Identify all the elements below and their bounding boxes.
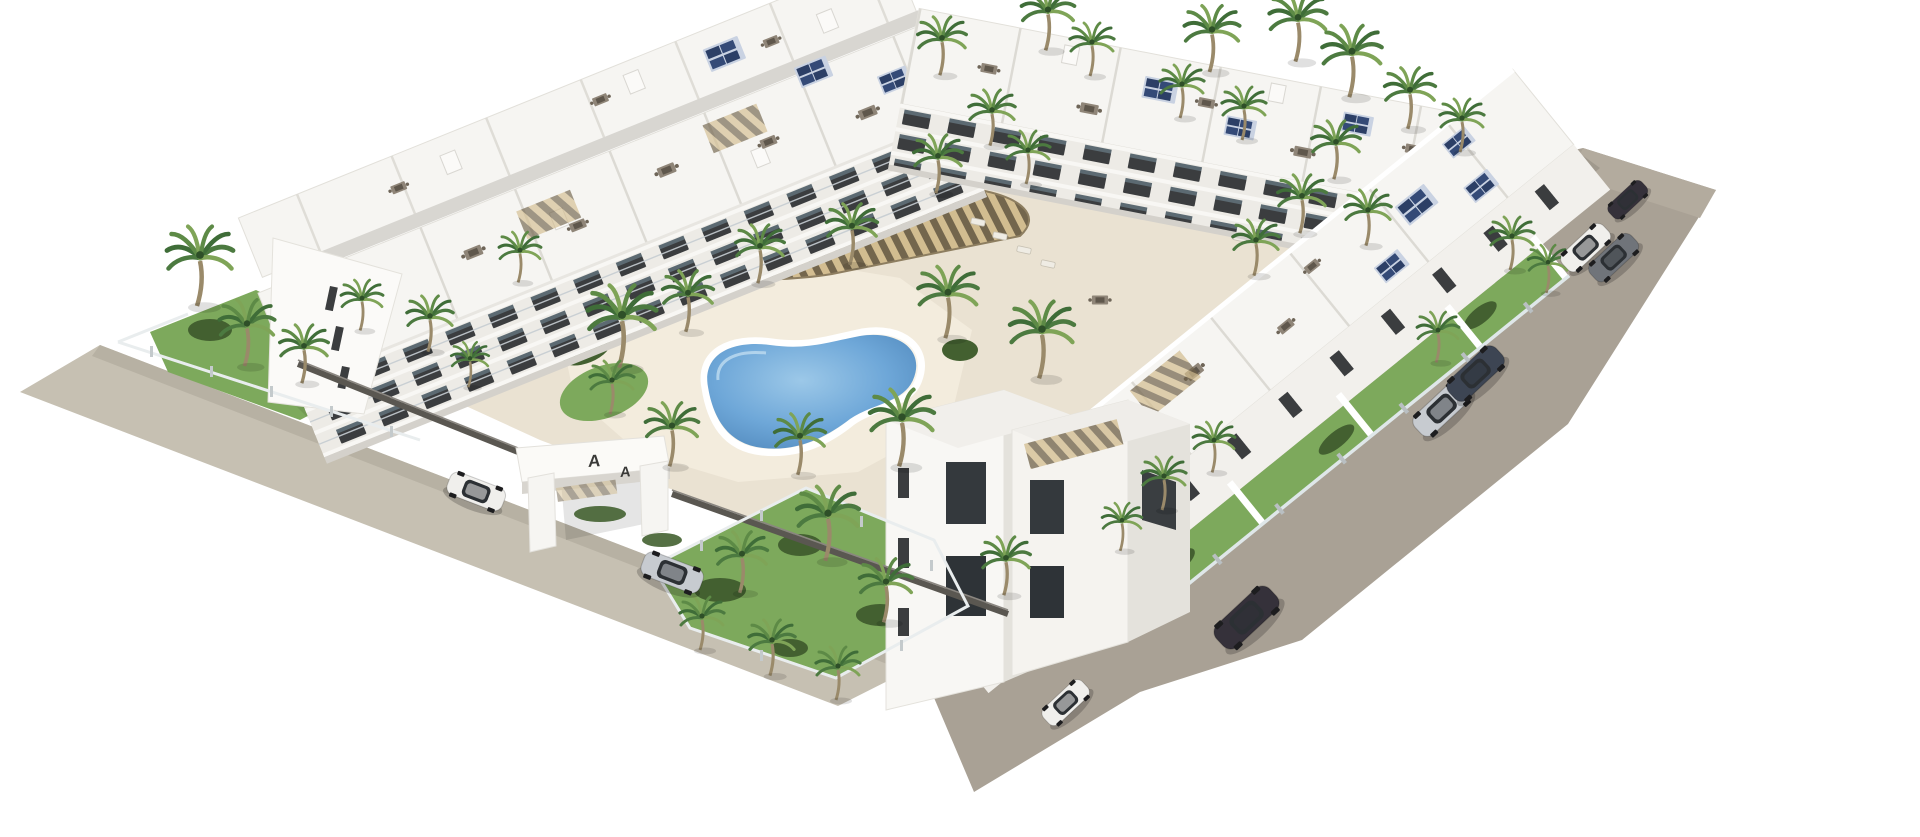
gate-letter-left: A (588, 451, 601, 471)
entrance-gate: A A (516, 436, 682, 552)
render-canvas: A A (0, 0, 1920, 837)
gate-letter-right: A (620, 464, 632, 481)
palm-tree (167, 227, 233, 313)
palm-tree (1269, 0, 1326, 67)
architectural-render: A A (0, 0, 1920, 837)
